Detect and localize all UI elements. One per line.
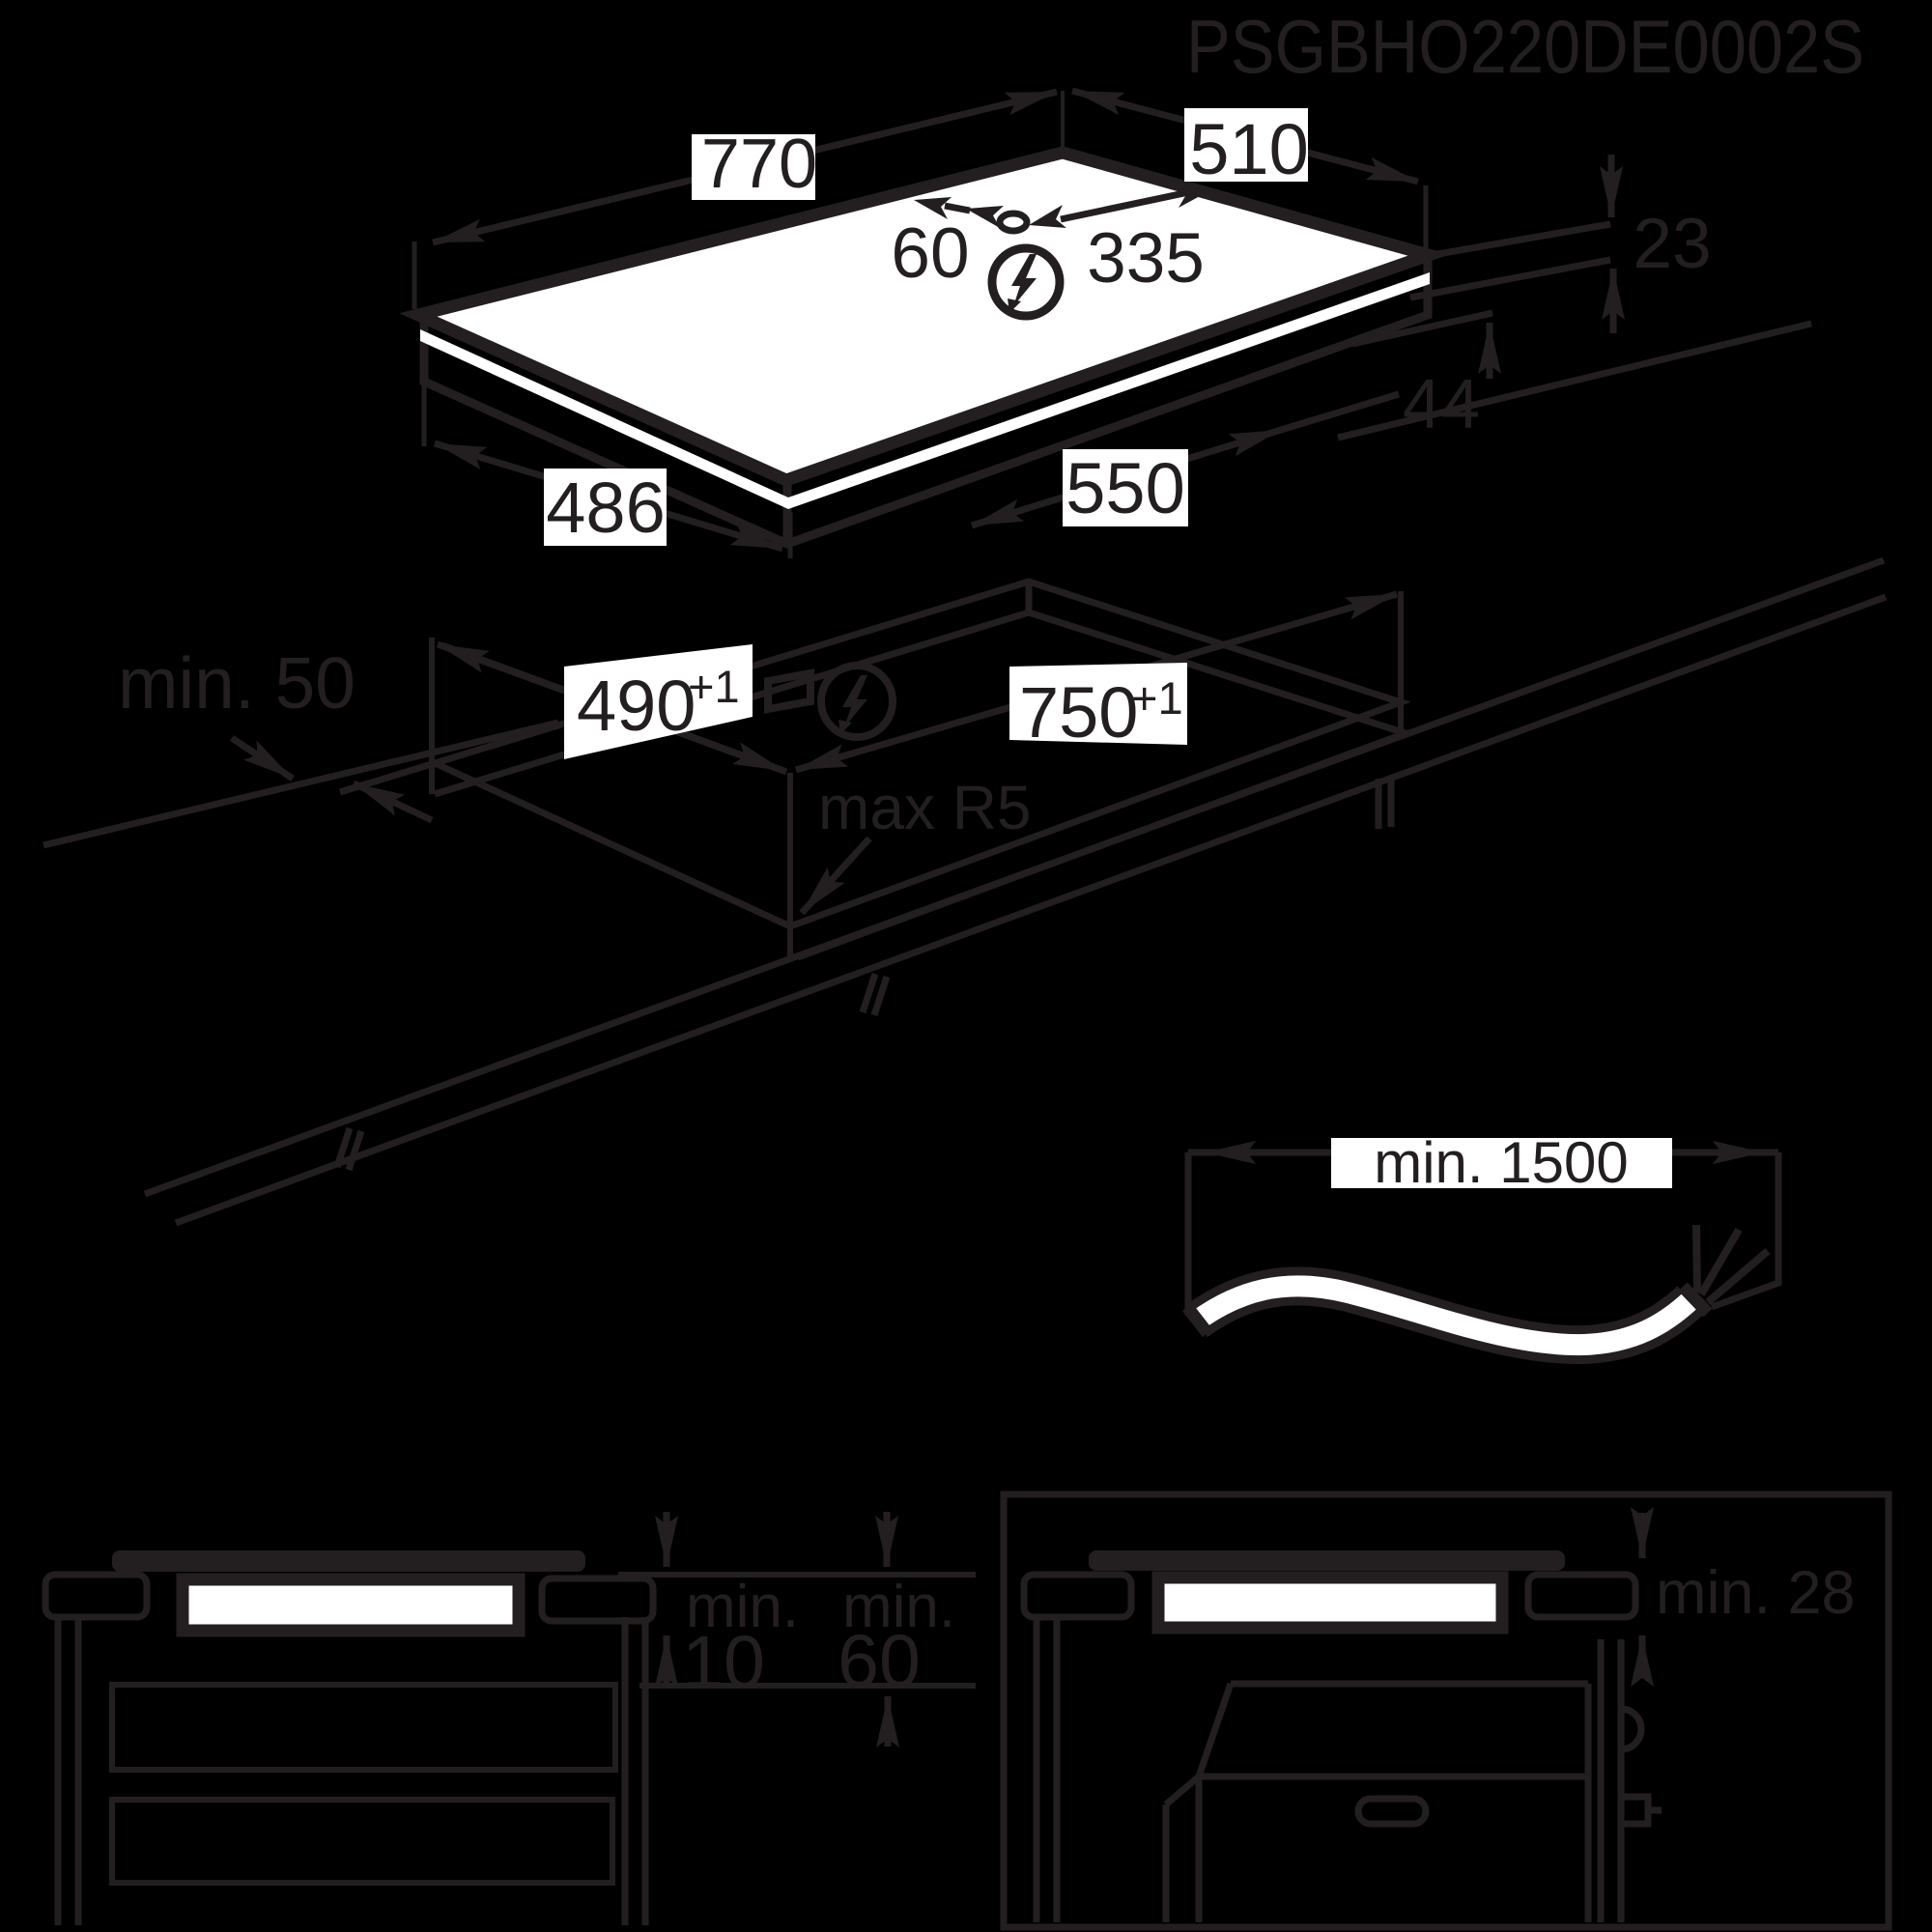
svg-text:510: 510 (1189, 109, 1308, 189)
svg-text:min. 1500: min. 1500 (1374, 1130, 1629, 1195)
svg-text:44: 44 (1403, 366, 1480, 443)
svg-text:10: 10 (682, 1621, 765, 1704)
svg-text:550: 550 (1065, 448, 1184, 528)
svg-text:486: 486 (546, 468, 665, 548)
svg-text:60: 60 (891, 214, 969, 293)
svg-text:min. 50: min. 50 (118, 642, 355, 724)
svg-text:+1: +1 (1131, 672, 1183, 724)
svg-text:335: 335 (1087, 219, 1205, 298)
svg-text:750: 750 (1019, 672, 1138, 753)
svg-text:min. 28: min. 28 (1656, 1559, 1856, 1627)
svg-text:770: 770 (701, 126, 817, 203)
svg-text:max R5: max R5 (818, 773, 1032, 842)
svg-text:+1: +1 (688, 661, 740, 712)
svg-text:PSGBHO220DE0002S: PSGBHO220DE0002S (1186, 4, 1864, 89)
svg-text:490: 490 (577, 666, 696, 746)
svg-text:60: 60 (838, 1620, 921, 1703)
svg-text:23: 23 (1633, 205, 1711, 283)
